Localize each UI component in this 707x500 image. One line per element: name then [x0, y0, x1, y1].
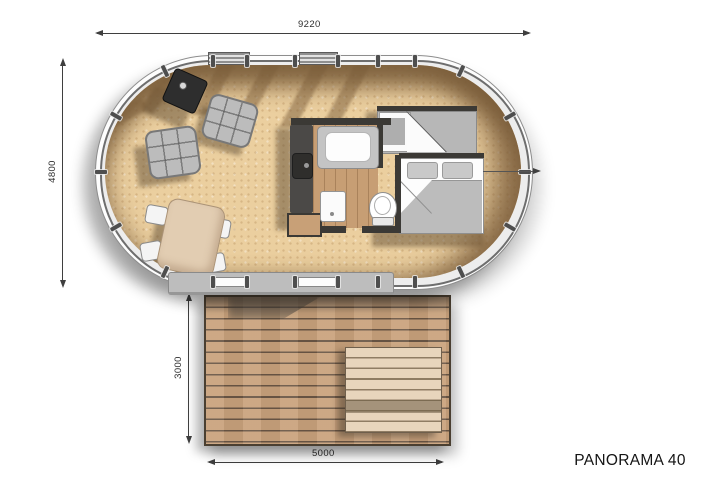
- wall-vent: [299, 52, 338, 65]
- mullion-post: [376, 55, 380, 67]
- bedroom-west-wall: [395, 155, 401, 233]
- bathroom-north-wall: [291, 118, 391, 125]
- bathroom-south-wall: [362, 226, 396, 233]
- dimension-line: [62, 62, 63, 282]
- arrow-icon: [95, 30, 103, 36]
- bathtub: [317, 126, 379, 169]
- mullion-post: [245, 276, 249, 288]
- dimension-line: [97, 33, 529, 34]
- mullion-post: [413, 276, 417, 288]
- kitchen-counter: [290, 125, 313, 213]
- dimension-line: [209, 462, 442, 463]
- sliding-door-panel: [215, 277, 247, 287]
- terrace-door-sill: [168, 272, 394, 295]
- mullion-post: [336, 55, 340, 67]
- double-bed: [399, 153, 484, 233]
- wardrobe: [377, 106, 477, 153]
- toilet-base: [372, 217, 394, 226]
- plan-title: PANORAMA 40: [556, 452, 704, 470]
- floor-plan-canvas: 9220 4800 3000 5000: [0, 0, 707, 500]
- toilet-seat: [374, 196, 391, 215]
- mullion-post: [211, 55, 215, 67]
- pillow: [442, 162, 473, 179]
- arrow-icon: [60, 58, 66, 66]
- pillow: [407, 162, 438, 179]
- dimension-line: [188, 297, 189, 438]
- drain-icon: [330, 212, 334, 216]
- arrow-icon: [60, 280, 66, 288]
- mullion-post: [245, 55, 249, 67]
- mullion-post: [336, 276, 340, 288]
- sliding-door-panel: [298, 277, 336, 287]
- lounger-shadow: [346, 400, 441, 413]
- deck: [204, 295, 451, 446]
- dimension-label: 3000: [173, 356, 184, 379]
- stove-flue-icon: [178, 80, 189, 91]
- washbasin: [320, 191, 346, 222]
- kitchen-cabinet: [287, 213, 322, 237]
- mullion-post: [376, 276, 380, 288]
- mullion-post: [293, 276, 297, 288]
- arrow-icon: [523, 30, 531, 36]
- arrow-icon: [436, 459, 444, 465]
- arrow-icon: [186, 436, 192, 444]
- bathtub-basin: [325, 132, 371, 162]
- mullion-post: [211, 276, 215, 288]
- lounge-chair: [144, 125, 202, 181]
- mullion-post: [413, 55, 417, 67]
- dimension-label: 5000: [312, 448, 335, 459]
- arrow-icon: [533, 168, 541, 174]
- faucet-icon: [304, 163, 309, 168]
- mullion-post: [95, 170, 107, 174]
- arrow-icon: [207, 459, 215, 465]
- deck-lounger: [345, 347, 442, 433]
- dimension-label: 4800: [47, 160, 58, 183]
- section-leader-line: [483, 171, 537, 172]
- kitchen-sink: [292, 153, 313, 179]
- mullion-post: [293, 55, 297, 67]
- dimension-label: 9220: [298, 19, 321, 30]
